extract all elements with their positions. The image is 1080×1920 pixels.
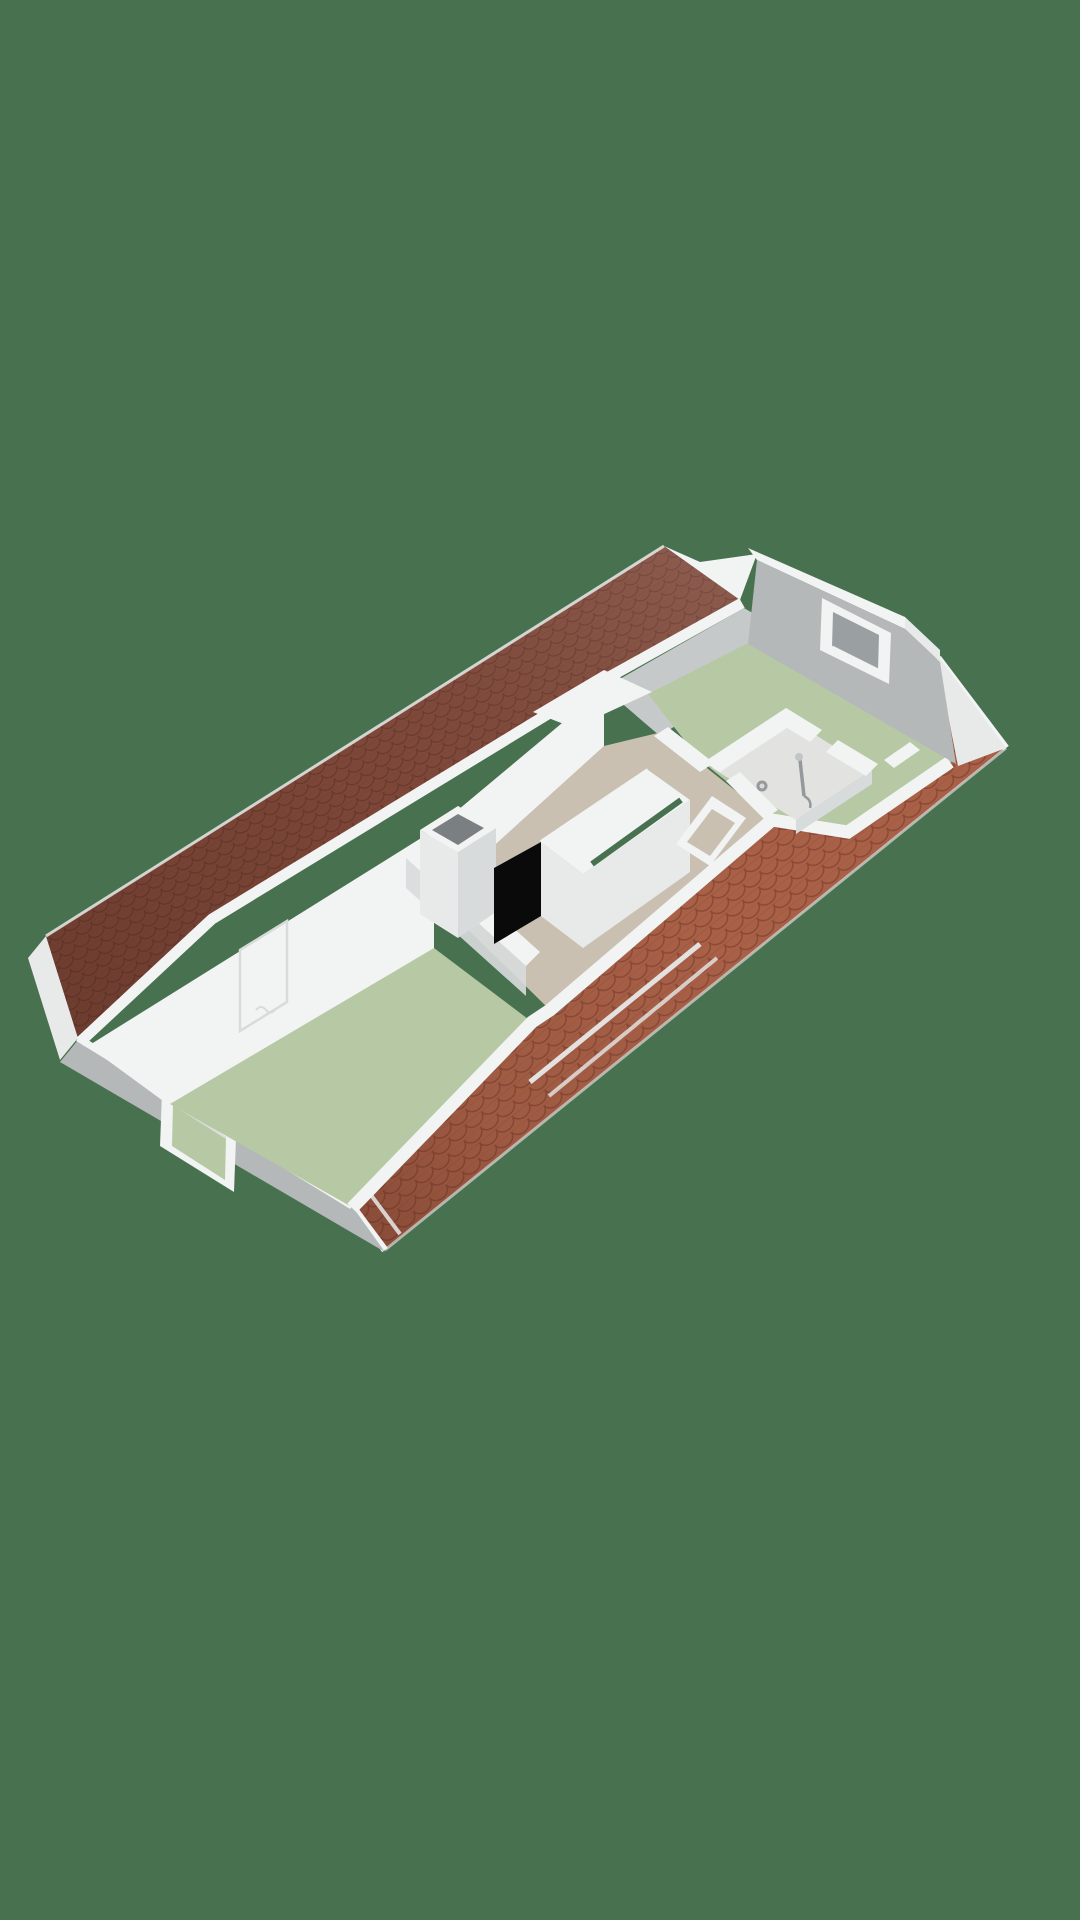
floorplan-stage [0, 0, 1080, 1920]
floorplan-3d-view[interactable] [0, 0, 1080, 1920]
chimney [420, 806, 496, 938]
